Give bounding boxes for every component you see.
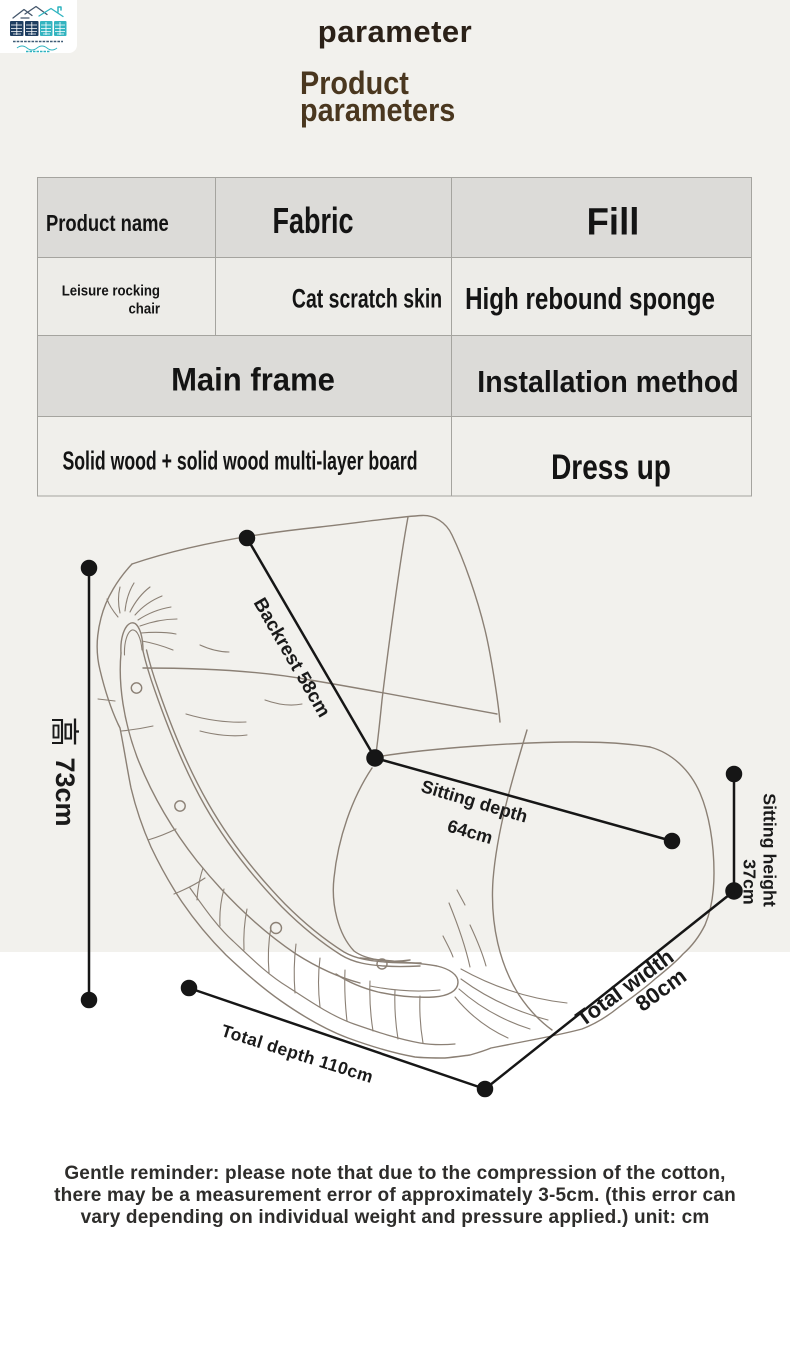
- svg-text:Total depth 110cm: Total depth 110cm: [219, 1020, 376, 1087]
- svg-text:73cm: 73cm: [50, 758, 80, 827]
- svg-text:Sitting height: Sitting height: [760, 793, 780, 907]
- svg-text:64cm: 64cm: [445, 816, 495, 848]
- svg-text:37cm: 37cm: [740, 859, 760, 904]
- svg-text:Sitting depth: Sitting depth: [419, 776, 530, 826]
